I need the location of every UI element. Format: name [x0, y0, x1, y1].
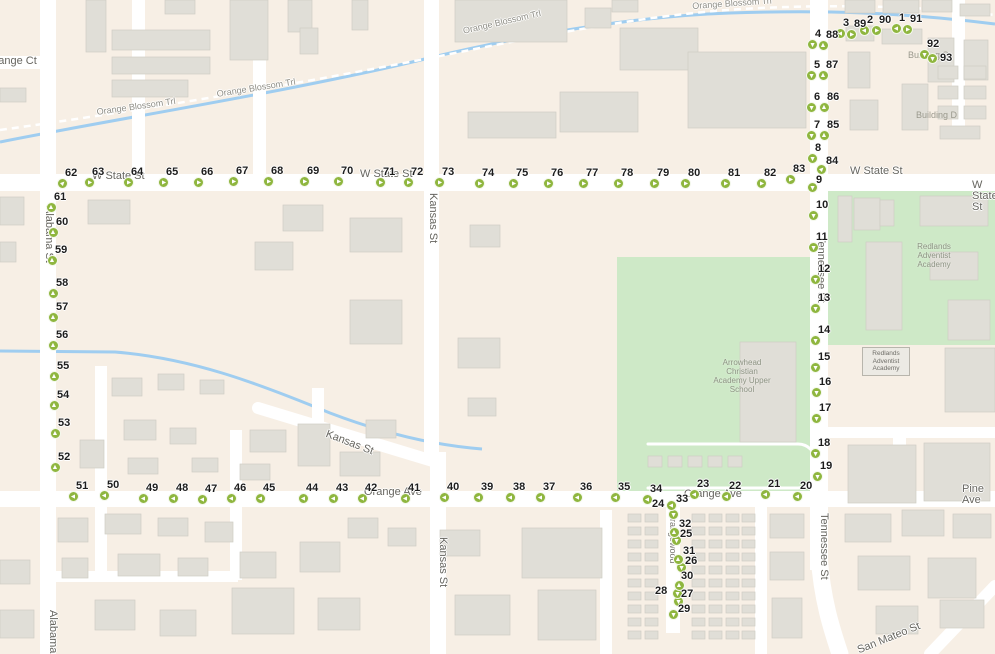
- route-marker-number: 29: [678, 604, 690, 615]
- route-marker-number: 26: [685, 556, 697, 567]
- route-marker-10[interactable]: ▲: [808, 210, 819, 221]
- route-marker-number: 76: [551, 168, 563, 179]
- route-marker-87[interactable]: ▲: [818, 70, 829, 81]
- route-marker-76[interactable]: ▲: [543, 178, 554, 189]
- route-marker-number: 89: [854, 19, 866, 30]
- direction-arrow-icon: ▲: [813, 389, 820, 396]
- route-marker-7[interactable]: ▲: [806, 130, 817, 141]
- direction-arrow-icon: ▲: [821, 132, 828, 139]
- direction-arrow-icon: ▲: [475, 494, 482, 501]
- direction-arrow-icon: ▲: [50, 342, 57, 349]
- route-marker-77[interactable]: ▲: [578, 178, 589, 189]
- route-marker-number: 93: [940, 53, 952, 64]
- route-marker-6[interactable]: ▲: [806, 102, 817, 113]
- direction-arrow-icon: ▲: [673, 537, 680, 544]
- route-marker-number: 36: [580, 482, 592, 493]
- direction-arrow-icon: ▲: [199, 496, 206, 503]
- route-marker-41[interactable]: ▲: [400, 493, 411, 504]
- route-marker-number: 8: [815, 143, 821, 154]
- route-marker-54[interactable]: ▲: [49, 400, 60, 411]
- direction-arrow-icon: ▲: [50, 229, 57, 236]
- route-marker-52[interactable]: ▲: [50, 462, 61, 473]
- direction-arrow-icon: ▲: [809, 155, 816, 162]
- direction-arrow-icon: ▲: [674, 590, 681, 597]
- route-marker-number: 52: [58, 452, 70, 463]
- route-marker-17[interactable]: ▲: [811, 413, 822, 424]
- route-marker-number: 44: [306, 483, 318, 494]
- direction-arrow-icon: ▲: [476, 180, 483, 187]
- direction-arrow-icon: ▲: [49, 257, 56, 264]
- direction-arrow-icon: ▲: [810, 244, 817, 251]
- direction-arrow-icon: ▲: [813, 415, 820, 422]
- direction-arrow-icon: ▲: [52, 464, 59, 471]
- direction-arrow-icon: ▲: [820, 72, 827, 79]
- map-base-layer: [0, 0, 995, 654]
- route-marker-number: 88: [826, 30, 838, 41]
- route-marker-number: 7: [814, 120, 820, 131]
- direction-arrow-icon: ▲: [808, 72, 815, 79]
- direction-arrow-icon: ▲: [671, 529, 678, 536]
- route-marker-number: 35: [618, 482, 630, 493]
- route-marker-82[interactable]: ▲: [756, 178, 767, 189]
- route-marker-number: 68: [271, 166, 283, 177]
- route-marker-55[interactable]: ▲: [49, 371, 60, 382]
- direction-arrow-icon: ▲: [230, 178, 237, 185]
- route-marker-48[interactable]: ▲: [168, 493, 179, 504]
- route-marker-number: 13: [818, 293, 830, 304]
- direction-arrow-icon: ▲: [816, 164, 826, 174]
- route-marker-40[interactable]: ▲: [439, 492, 450, 503]
- direction-arrow-icon: ▲: [57, 178, 67, 188]
- route-marker-75[interactable]: ▲: [508, 178, 519, 189]
- route-marker-number: 16: [819, 377, 831, 388]
- route-marker-51[interactable]: ▲: [68, 491, 79, 502]
- route-marker-number: 50: [107, 480, 119, 491]
- route-marker-number: 70: [341, 166, 353, 177]
- route-marker-number: 87: [826, 60, 838, 71]
- route-marker-44[interactable]: ▲: [298, 493, 309, 504]
- route-marker-number: 80: [688, 168, 700, 179]
- direction-arrow-icon: ▲: [812, 276, 819, 283]
- route-marker-36[interactable]: ▲: [572, 492, 583, 503]
- route-marker-8[interactable]: ▲: [807, 153, 818, 164]
- route-marker-number: 15: [818, 352, 830, 363]
- route-marker-number: 20: [800, 481, 812, 492]
- direction-arrow-icon: ▲: [812, 305, 819, 312]
- route-marker-number: 28: [655, 586, 667, 597]
- route-marker-number: 18: [818, 438, 830, 449]
- route-marker-32[interactable]: ▲: [669, 527, 680, 538]
- route-marker-number: 34: [650, 484, 662, 495]
- direction-arrow-icon: ▲: [893, 25, 900, 32]
- route-marker-38[interactable]: ▲: [505, 492, 516, 503]
- route-marker-45[interactable]: ▲: [255, 493, 266, 504]
- route-marker-59[interactable]: ▲: [47, 255, 58, 266]
- route-marker-number: 11: [816, 232, 828, 243]
- direction-arrow-icon: ▲: [675, 556, 682, 563]
- route-marker-number: 45: [263, 483, 275, 494]
- route-marker-number: 5: [814, 60, 820, 71]
- direction-arrow-icon: ▲: [821, 104, 828, 111]
- route-marker-number: 63: [92, 167, 104, 178]
- route-marker-31[interactable]: ▲: [673, 554, 684, 565]
- direction-arrow-icon: ▲: [377, 179, 384, 186]
- route-marker-33[interactable]: ▲: [666, 500, 677, 511]
- direction-arrow-icon: ▲: [682, 180, 689, 187]
- route-marker-68[interactable]: ▲: [263, 176, 274, 187]
- direction-arrow-icon: ▲: [537, 494, 544, 501]
- route-marker-number: 47: [205, 484, 217, 495]
- street-label: Tennessee St: [818, 513, 829, 580]
- route-marker-number: 59: [55, 245, 67, 256]
- place-label: Redlands Adventist Academy: [862, 347, 910, 376]
- route-marker-80[interactable]: ▲: [680, 178, 691, 189]
- direction-arrow-icon: ▲: [257, 495, 264, 502]
- direction-arrow-icon: ▲: [809, 184, 816, 191]
- route-marker-number: 9: [816, 175, 822, 186]
- direction-arrow-icon: ▲: [668, 502, 675, 509]
- route-marker-42[interactable]: ▲: [357, 493, 368, 504]
- direction-arrow-icon: ▲: [359, 495, 366, 502]
- route-marker-73[interactable]: ▲: [434, 177, 445, 188]
- route-marker-69[interactable]: ▲: [299, 176, 310, 187]
- route-marker-5[interactable]: ▲: [806, 70, 817, 81]
- route-marker-number: 84: [826, 156, 838, 167]
- route-marker-number: 21: [768, 479, 780, 490]
- route-marker-89[interactable]: ▲: [846, 29, 857, 40]
- route-marker-14[interactable]: ▲: [810, 335, 821, 346]
- route-marker-number: 56: [56, 330, 68, 341]
- route-marker-number: 2: [867, 15, 873, 26]
- direction-arrow-icon: ▲: [228, 495, 235, 502]
- direction-arrow-icon: ▲: [160, 179, 167, 186]
- street-label: Pine Ave: [962, 484, 995, 506]
- direction-arrow-icon: ▲: [758, 180, 765, 187]
- route-marker-number: 53: [58, 418, 70, 429]
- route-marker-12[interactable]: ▲: [810, 274, 821, 285]
- route-marker-number: 14: [818, 325, 830, 336]
- route-marker-number: 65: [166, 167, 178, 178]
- direction-arrow-icon: ▲: [580, 180, 587, 187]
- route-marker-71[interactable]: ▲: [375, 177, 386, 188]
- route-marker-number: 75: [516, 168, 528, 179]
- direction-arrow-icon: ▲: [51, 402, 58, 409]
- route-marker-number: 73: [442, 167, 454, 178]
- route-marker-1[interactable]: ▲: [891, 23, 902, 34]
- route-marker-number: 58: [56, 278, 68, 289]
- route-marker-number: 66: [201, 167, 213, 178]
- direction-arrow-icon: ▲: [651, 180, 658, 187]
- route-marker-number: 57: [56, 302, 68, 313]
- route-marker-number: 31: [683, 546, 695, 557]
- route-marker-78[interactable]: ▲: [613, 178, 624, 189]
- route-marker-number: 37: [543, 482, 555, 493]
- route-marker-number: 51: [76, 481, 88, 492]
- route-marker-number: 22: [729, 481, 741, 492]
- direction-arrow-icon: ▲: [644, 496, 651, 503]
- route-marker-number: 4: [815, 29, 821, 40]
- direction-arrow-icon: ▲: [301, 178, 308, 185]
- direction-arrow-icon: ▲: [170, 495, 177, 502]
- direction-arrow-icon: ▲: [612, 494, 619, 501]
- route-marker-64[interactable]: ▲: [123, 177, 134, 188]
- route-marker-number: 61: [54, 192, 66, 203]
- route-marker-number: 25: [680, 529, 692, 540]
- direction-arrow-icon: ▲: [335, 178, 342, 185]
- route-marker-number: 43: [336, 483, 348, 494]
- route-marker-72[interactable]: ▲: [403, 177, 414, 188]
- route-marker-65[interactable]: ▲: [158, 177, 169, 188]
- route-marker-58[interactable]: ▲: [48, 288, 59, 299]
- direction-arrow-icon: ▲: [691, 491, 698, 498]
- direction-arrow-icon: ▲: [615, 180, 622, 187]
- route-marker-49[interactable]: ▲: [138, 493, 149, 504]
- route-marker-29[interactable]: ▲: [668, 609, 679, 620]
- route-marker-number: 32: [679, 519, 691, 530]
- route-marker-number: 27: [681, 589, 693, 600]
- direction-arrow-icon: ▲: [670, 511, 677, 518]
- route-marker-62[interactable]: ▲: [57, 178, 68, 189]
- route-marker-number: 49: [146, 483, 158, 494]
- direction-arrow-icon: ▲: [762, 491, 769, 498]
- route-marker-number: 81: [728, 168, 740, 179]
- route-marker-70[interactable]: ▲: [333, 176, 344, 187]
- route-marker-47[interactable]: ▲: [197, 494, 208, 505]
- route-marker-number: 79: [657, 168, 669, 179]
- route-marker-number: 91: [910, 14, 922, 25]
- route-marker-number: 40: [447, 482, 459, 493]
- direction-arrow-icon: ▲: [195, 179, 202, 186]
- direction-arrow-icon: ▲: [86, 179, 93, 186]
- route-marker-22[interactable]: ▲: [721, 491, 732, 502]
- direction-arrow-icon: ▲: [814, 473, 821, 480]
- route-marker-number: 23: [697, 479, 709, 490]
- direction-arrow-icon: ▲: [510, 180, 517, 187]
- street-label: Alabama St: [47, 610, 58, 654]
- route-marker-60[interactable]: ▲: [48, 227, 59, 238]
- direction-arrow-icon: ▲: [812, 364, 819, 371]
- route-marker-number: 30: [681, 571, 693, 582]
- route-marker-43[interactable]: ▲: [328, 493, 339, 504]
- route-marker-number: 71: [383, 167, 395, 178]
- direction-arrow-icon: ▲: [723, 493, 730, 500]
- route-marker-number: 78: [621, 168, 633, 179]
- direction-arrow-icon: ▲: [402, 495, 409, 502]
- direction-arrow-icon: ▲: [810, 212, 817, 219]
- direction-arrow-icon: ▲: [808, 132, 815, 139]
- direction-arrow-icon: ▲: [405, 179, 412, 186]
- route-marker-63[interactable]: ▲: [84, 177, 95, 188]
- route-marker-number: 77: [586, 168, 598, 179]
- direction-arrow-icon: ▲: [794, 493, 801, 500]
- route-marker-number: 19: [820, 461, 832, 472]
- route-marker-number: 10: [816, 200, 828, 211]
- route-marker-number: 6: [814, 92, 820, 103]
- direction-arrow-icon: ▲: [52, 430, 59, 437]
- direction-arrow-icon: ▲: [50, 290, 57, 297]
- route-marker-number: 24: [652, 499, 664, 510]
- direction-arrow-icon: ▲: [722, 180, 729, 187]
- route-marker-53[interactable]: ▲: [50, 428, 61, 439]
- route-marker-93[interactable]: ▲: [927, 53, 938, 64]
- route-marker-13[interactable]: ▲: [810, 303, 821, 314]
- direction-arrow-icon: ▲: [436, 179, 443, 186]
- route-marker-21[interactable]: ▲: [760, 489, 771, 500]
- route-marker-57[interactable]: ▲: [48, 312, 59, 323]
- street-label: W State St: [850, 166, 903, 177]
- route-marker-88[interactable]: ▲: [818, 40, 829, 51]
- route-marker-number: 1: [899, 13, 905, 24]
- route-marker-19[interactable]: ▲: [812, 471, 823, 482]
- direction-arrow-icon: ▲: [50, 314, 57, 321]
- route-marker-number: 82: [764, 168, 776, 179]
- route-marker-81[interactable]: ▲: [720, 178, 731, 189]
- place-label: Arrowhead Christian Academy Upper School: [706, 358, 778, 394]
- route-marker-number: 74: [482, 168, 494, 179]
- route-marker-number: 39: [481, 482, 493, 493]
- place-label: Redlands Adventist Academy: [898, 242, 970, 269]
- direction-arrow-icon: ▲: [441, 494, 448, 501]
- route-marker-number: 64: [131, 167, 143, 178]
- map-canvas[interactable]: Orange CtOrange Blossom TrlOrange Blosso…: [0, 0, 995, 654]
- route-marker-79[interactable]: ▲: [649, 178, 660, 189]
- direction-arrow-icon: ▲: [848, 31, 855, 38]
- route-marker-number: 67: [236, 166, 248, 177]
- route-marker-number: 41: [408, 483, 420, 494]
- direction-arrow-icon: ▲: [48, 204, 55, 211]
- route-marker-56[interactable]: ▲: [48, 340, 59, 351]
- street-label: Orange Ct: [0, 56, 37, 67]
- route-marker-number: 83: [793, 164, 805, 175]
- route-marker-74[interactable]: ▲: [474, 178, 485, 189]
- route-marker-number: 48: [176, 483, 188, 494]
- direction-arrow-icon: ▲: [140, 495, 147, 502]
- route-marker-number: 69: [307, 166, 319, 177]
- direction-arrow-icon: ▲: [670, 611, 677, 618]
- direction-arrow-icon: ▲: [300, 495, 307, 502]
- route-marker-83[interactable]: ▲: [785, 174, 796, 185]
- direction-arrow-icon: ▲: [812, 450, 819, 457]
- route-marker-39[interactable]: ▲: [473, 492, 484, 503]
- route-marker-61[interactable]: ▲: [46, 202, 57, 213]
- route-marker-15[interactable]: ▲: [810, 362, 821, 373]
- route-marker-number: 42: [365, 483, 377, 494]
- route-marker-23[interactable]: ▲: [689, 489, 700, 500]
- street-label: Kansas St: [427, 193, 438, 243]
- route-marker-number: 60: [56, 217, 68, 228]
- route-marker-number: 12: [818, 264, 830, 275]
- route-marker-85[interactable]: ▲: [819, 130, 830, 141]
- direction-arrow-icon: ▲: [809, 41, 816, 48]
- route-marker-37[interactable]: ▲: [535, 492, 546, 503]
- direction-arrow-icon: ▲: [70, 493, 77, 500]
- direction-arrow-icon: ▲: [51, 373, 58, 380]
- direction-arrow-icon: ▲: [101, 492, 108, 499]
- direction-arrow-icon: ▲: [507, 494, 514, 501]
- route-marker-84[interactable]: ▲: [816, 164, 827, 175]
- route-marker-number: 17: [819, 403, 831, 414]
- direction-arrow-icon: ▲: [787, 176, 794, 183]
- route-marker-18[interactable]: ▲: [810, 448, 821, 459]
- route-marker-number: 72: [411, 167, 423, 178]
- direction-arrow-icon: ▲: [812, 337, 819, 344]
- route-marker-35[interactable]: ▲: [610, 492, 621, 503]
- route-marker-number: 46: [234, 483, 246, 494]
- route-marker-number: 86: [827, 92, 839, 103]
- direction-arrow-icon: ▲: [820, 42, 827, 49]
- direction-arrow-icon: ▲: [808, 104, 815, 111]
- route-marker-number: 33: [676, 494, 688, 505]
- direction-arrow-icon: ▲: [574, 494, 581, 501]
- route-marker-number: 62: [65, 168, 77, 179]
- route-marker-90[interactable]: ▲: [871, 25, 882, 36]
- route-marker-50[interactable]: ▲: [99, 490, 110, 501]
- route-marker-number: 85: [827, 120, 839, 131]
- street-label: W State St: [972, 180, 995, 213]
- route-marker-11[interactable]: ▲: [808, 242, 819, 253]
- route-marker-number: 90: [879, 15, 891, 26]
- direction-arrow-icon: ▲: [904, 26, 911, 33]
- direction-arrow-icon: ▲: [545, 180, 552, 187]
- route-marker-number: 55: [57, 361, 69, 372]
- street-label: Kansas St: [437, 537, 448, 587]
- route-marker-number: 3: [843, 18, 849, 29]
- direction-arrow-icon: ▲: [873, 27, 880, 34]
- route-marker-46[interactable]: ▲: [226, 493, 237, 504]
- route-marker-number: 92: [927, 39, 939, 50]
- route-marker-91[interactable]: ▲: [902, 24, 913, 35]
- direction-arrow-icon: ▲: [929, 55, 936, 62]
- route-marker-34[interactable]: ▲: [642, 494, 653, 505]
- route-marker-86[interactable]: ▲: [819, 102, 830, 113]
- route-marker-4[interactable]: ▲: [807, 39, 818, 50]
- route-marker-20[interactable]: ▲: [792, 491, 803, 502]
- direction-arrow-icon: ▲: [125, 179, 132, 186]
- direction-arrow-icon: ▲: [265, 178, 272, 185]
- route-marker-67[interactable]: ▲: [228, 176, 239, 187]
- route-marker-66[interactable]: ▲: [193, 177, 204, 188]
- route-marker-number: 54: [57, 390, 69, 401]
- place-label: Building D: [916, 110, 957, 121]
- direction-arrow-icon: ▲: [330, 495, 337, 502]
- route-marker-number: 38: [513, 482, 525, 493]
- route-marker-16[interactable]: ▲: [811, 387, 822, 398]
